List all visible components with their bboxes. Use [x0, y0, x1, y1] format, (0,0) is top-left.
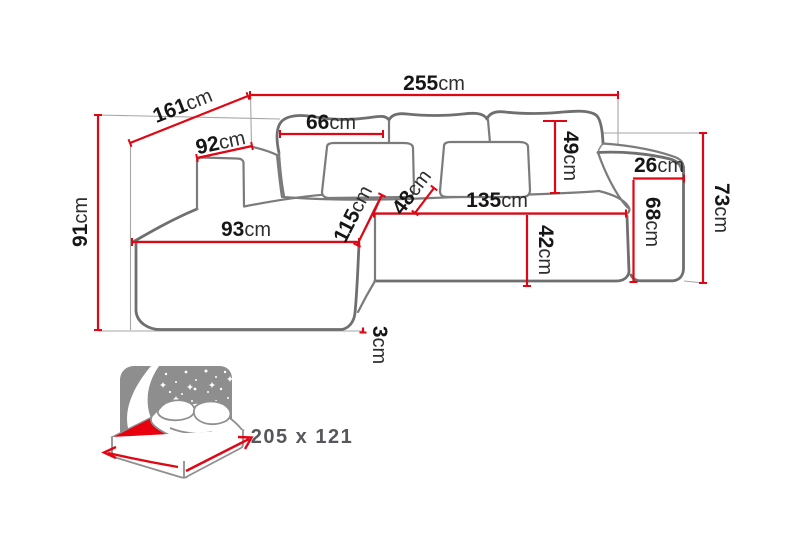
- dim-leg-height-line: [360, 328, 367, 333]
- dim-back-height-line: [699, 133, 707, 283]
- sleeping-area-label: 205 x 121: [251, 426, 353, 448]
- dim-right-armrest-width-label: 26cm: [634, 154, 684, 177]
- dim-total-width-label: 255cm: [403, 72, 465, 95]
- dim-back-height-label: 73cm: [710, 183, 733, 233]
- dim-total-height-label: 91cm: [69, 197, 92, 247]
- bed-pillow-right: [194, 402, 231, 425]
- dim-total-height-line: [94, 115, 102, 330]
- dim-leg-height-label: 3cm: [368, 326, 391, 364]
- dim-seat-height-label: 42cm: [534, 225, 557, 275]
- dim-seat-width-label: 135cm: [466, 189, 528, 212]
- dim-chaise-width-label: 93cm: [221, 218, 271, 241]
- diagram-canvas: 255cm 161cm 92cm 66cm 49cm 26cm 73cm 68c…: [0, 0, 800, 533]
- dim-right-armrest-height-label: 68cm: [641, 197, 664, 247]
- bed-base: [112, 430, 243, 478]
- dim-back-cushion-width-label: 66cm: [306, 111, 356, 134]
- sofa-bed-icon: 205 x 121: [104, 366, 353, 478]
- sofa-dimension-diagram: 255cm 161cm 92cm 66cm 49cm 26cm 73cm 68c…: [0, 0, 800, 533]
- dim-back-cushion-height-label: 49cm: [559, 131, 582, 181]
